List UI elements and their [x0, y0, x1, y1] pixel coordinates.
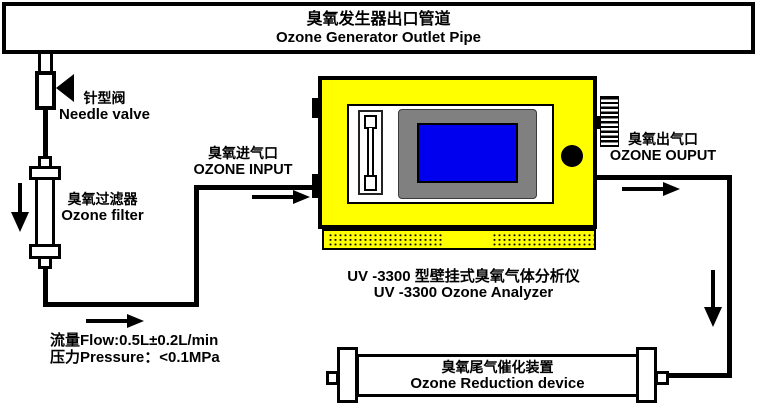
rotameter-top-fitting	[364, 115, 377, 129]
ozone-output-label-en: OZONE OUPUT	[604, 148, 722, 164]
valve-filter-line	[43, 108, 48, 158]
pipe-riser	[194, 185, 199, 307]
reduction-right-cap	[636, 347, 657, 403]
vent-holes-left	[328, 233, 442, 246]
reduction-right-nub	[655, 371, 669, 385]
ozone-filter-label: 臭氧过滤器 Ozone filter	[50, 192, 155, 224]
rotameter-bottom-fitting	[364, 175, 377, 191]
flow-arrow-down-right-icon	[704, 270, 722, 328]
flow-rate-text: 流量Flow:0.5L±0.2L/min	[50, 333, 220, 350]
pipe-down-right	[727, 175, 732, 378]
reduction-left-cap	[337, 347, 358, 403]
needle-valve-label: 针型阀 Needle valve	[52, 91, 157, 123]
rotameter	[358, 110, 383, 195]
rotameter-tube	[367, 128, 374, 176]
analyzer-caption-en: UV -3300 Ozone Analyzer	[330, 285, 597, 301]
ozone-input-label: 臭氧进气口 OZONE INPUT	[188, 146, 298, 178]
pipe-to-reduction	[666, 373, 729, 378]
ozone-output-label-zh: 臭氧出气口	[604, 132, 722, 148]
reduction-device-label-en: Ozone Reduction device	[359, 375, 636, 392]
generator-outlet-pipe-label-zh: 臭氧发生器出口管道	[6, 11, 751, 29]
analyzer-caption: UV -3300 型壁挂式臭氧气体分析仪 UV -3300 Ozone Anal…	[330, 269, 597, 301]
ozone-input-label-zh: 臭氧进气口	[188, 146, 298, 162]
flow-arrow-down-filter-icon	[11, 183, 29, 241]
reduction-device-body: 臭氧尾气催化装置 Ozone Reduction device	[356, 354, 639, 397]
power-knob	[561, 145, 583, 167]
needle-valve-label-zh: 针型阀	[52, 91, 157, 107]
flow-arrow-right-bottom-icon	[86, 314, 144, 328]
flow-specs: 流量Flow:0.5L±0.2L/min 压力Pressure：<0.1MPa	[50, 333, 220, 366]
pressure-text: 压力Pressure：<0.1MPa	[50, 350, 220, 367]
analyzer-caption-zh: UV -3300 型壁挂式臭氧气体分析仪	[330, 269, 597, 285]
analyzer-mount-tab-top	[312, 98, 320, 118]
flow-arrow-right-input-icon	[252, 190, 310, 204]
needle-valve-label-en: Needle valve	[52, 107, 157, 124]
vent-holes-right	[492, 233, 594, 246]
generator-outlet-pipe: 臭氧发生器出口管道 Ozone Generator Outlet Pipe	[2, 2, 755, 54]
ozone-filter-label-zh: 臭氧过滤器	[50, 192, 155, 208]
pipe-output-run	[597, 175, 732, 180]
reduction-device-label-zh: 臭氧尾气催化装置	[359, 359, 636, 375]
lcd-screen	[417, 123, 518, 183]
flow-arrow-right-output-icon	[622, 182, 680, 196]
ozone-input-label-en: OZONE INPUT	[188, 162, 298, 178]
ozone-output-label: 臭氧出气口 OZONE OUPUT	[604, 132, 722, 164]
analyzer-vent-panel	[322, 229, 596, 250]
ozone-analyzer-diagram: 臭氧发生器出口管道 Ozone Generator Outlet Pipe 针型…	[0, 0, 760, 407]
generator-outlet-pipe-label-en: Ozone Generator Outlet Pipe	[6, 29, 751, 46]
filter-outlet-line	[43, 266, 48, 307]
analyzer-mount-tab-bottom	[312, 174, 320, 198]
ozone-filter-label-en: Ozone filter	[50, 208, 155, 225]
pipe-bottom-left-run	[43, 302, 199, 307]
